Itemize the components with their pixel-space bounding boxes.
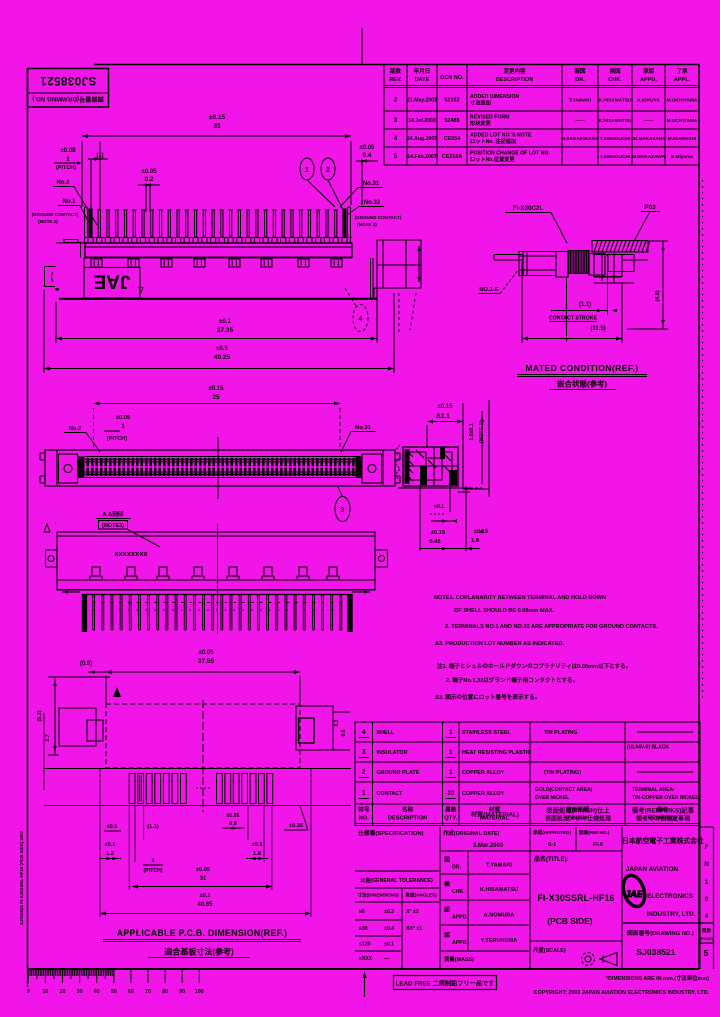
svg-text:INDUSTRY, LTD.: INDUSTRY, LTD. — [647, 911, 696, 918]
svg-text:K.HISAMATSU: K.HISAMATSU — [599, 118, 632, 124]
svg-text:M.UCHIYAMA: M.UCHIYAMA — [667, 97, 698, 103]
svg-text:材質(MATERIAL): 材質(MATERIAL) — [470, 811, 519, 819]
svg-text:図: 図 — [444, 856, 450, 864]
svg-text:OF SHELL SHOULD BE 0.08mm MAX.: OF SHELL SHOULD BE 0.08mm MAX. — [454, 608, 554, 614]
svg-text:10: 10 — [42, 989, 48, 995]
svg-text:A.KIKUYA: A.KIKUYA — [637, 97, 660, 103]
svg-text:±0.05: ±0.05 — [116, 415, 131, 421]
svg-text:4: 4 — [394, 136, 398, 142]
svg-text:80: 80 — [162, 989, 168, 995]
svg-text:±0.05: ±0.05 — [196, 867, 210, 873]
svg-text:(PITCH): (PITCH) — [107, 436, 127, 442]
svg-text:SJ038521 FI-X30SSRL-HF16 (PCB: SJ038521 FI-X30SSRL-HF16 (PCB SIDE) 2007 — [19, 830, 24, 925]
svg-text:符号: 符号 — [358, 806, 370, 814]
svg-text:CHK.: CHK. — [452, 889, 465, 895]
svg-text:40: 40 — [94, 989, 100, 995]
svg-text:NO.1-E: NO.1-E — [479, 287, 498, 293]
svg-text:形状変更: 形状変更 — [470, 119, 492, 127]
svg-text:1.9: 1.9 — [471, 538, 480, 544]
svg-text:≤6: ≤6 — [359, 909, 365, 915]
svg-text:40.25: 40.25 — [214, 354, 231, 361]
svg-text:37.35: 37.35 — [217, 327, 234, 334]
svg-text:APPD.: APPD. — [452, 915, 468, 921]
svg-text:OVER NICKEL: OVER NICKEL — [535, 795, 569, 801]
svg-text:±0.1: ±0.1 — [252, 842, 263, 848]
svg-text:30: 30 — [77, 989, 83, 995]
svg-text:APPLICABLE P.C.B. DIMENSION(RE: APPLICABLE P.C.B. DIMENSION(REF.) — [117, 928, 288, 938]
svg-text:寸法(DIMENSIONS): 寸法(DIMENSIONS) — [357, 892, 399, 899]
svg-text:(TIN PLATING): (TIN PLATING) — [544, 770, 581, 776]
svg-text:1: 1 — [362, 790, 366, 797]
svg-text:25: 25 — [212, 394, 220, 401]
svg-text:(NOTE 2): (NOTE 2) — [357, 222, 377, 227]
svg-text:(NOTE3): (NOTE3) — [102, 523, 124, 529]
svg-text:≤30: ≤30 — [359, 926, 368, 932]
svg-text:±0.15: ±0.15 — [438, 404, 454, 410]
svg-text:(NOTE 2): (NOTE 2) — [38, 219, 58, 224]
svg-text:(PAGE): (PAGE) — [700, 937, 714, 941]
svg-text:FI-X: FI-X — [593, 842, 604, 848]
svg-text:4: 4 — [362, 729, 366, 736]
svg-text:1.8: 1.8 — [253, 851, 262, 857]
svg-text:4: 4 — [705, 914, 709, 920]
svg-text:承認(APPROVED): 承認(APPROVED) — [533, 829, 571, 836]
svg-text:14.Feb.2007: 14.Feb.2007 — [407, 154, 437, 160]
svg-text:ELECTRONICS: ELECTRONICS — [647, 893, 694, 900]
svg-text:STAINLESS STEEL: STAINLESS STEEL — [462, 730, 511, 736]
svg-text:5: 5 — [394, 154, 398, 160]
svg-text:≤120: ≤120 — [359, 942, 371, 948]
svg-text:頁数: 頁数 — [702, 927, 712, 934]
svg-text:A.NOMURA: A.NOMURA — [484, 913, 515, 919]
svg-text:版数: 版数 — [389, 67, 402, 75]
svg-text:100: 100 — [195, 989, 204, 995]
svg-text:HEAT RESISTING PLASTIC: HEAT RESISTING PLASTIC — [462, 750, 531, 756]
svg-text:2: 2 — [326, 167, 330, 174]
svg-text:±0.05: ±0.05 — [199, 650, 215, 656]
svg-text:±0.15: ±0.15 — [209, 114, 226, 121]
svg-text:M.NAKAZAWA: M.NAKAZAWA — [632, 154, 666, 160]
svg-text:±0.1: ±0.1 — [384, 942, 394, 948]
svg-text:DESCRIPTION: DESCRIPTION — [388, 816, 428, 822]
svg-text:K.HISAMATSU: K.HISAMATSU — [480, 887, 518, 893]
svg-text:Δ3. 図示の位置にロット番号を表示する。: Δ3. 図示の位置にロット番号を表示する。 — [435, 693, 540, 701]
svg-text:2: 2 — [362, 769, 366, 776]
svg-text:承認: 承認 — [643, 67, 655, 75]
svg-text:ADDED LOT NO.'S NOTE: ADDED LOT NO.'S NOTE — [470, 133, 532, 139]
svg-text:(5.2): (5.2) — [37, 710, 43, 721]
svg-text:3: 3 — [362, 749, 366, 756]
svg-text:0.6: 0.6 — [341, 729, 347, 736]
svg-text:(0.9): (0.9) — [80, 661, 92, 667]
svg-text:了承: 了承 — [676, 67, 688, 75]
svg-text:質量(MASS): 質量(MASS) — [444, 955, 474, 963]
svg-text:N: N — [704, 862, 708, 868]
svg-text:GROUND PLATE: GROUND PLATE — [377, 770, 420, 776]
svg-text:ADDED DIMENSION: ADDED DIMENSION — [470, 94, 520, 100]
svg-text:SJ038521: SJ038521 — [636, 947, 675, 957]
svg-text:14.Jul.2003: 14.Jul.2003 — [408, 118, 436, 124]
svg-text:変更内容: 変更内容 — [503, 67, 526, 75]
svg-text:QTY.: QTY. — [444, 816, 457, 822]
svg-text:CE216A: CE216A — [442, 154, 463, 160]
svg-text:名称: 名称 — [402, 806, 414, 814]
svg-text:21.May.2003: 21.May.2003 — [407, 97, 437, 103]
svg-text:備考(REMARKS)記事: 備考(REMARKS)記事 — [632, 806, 695, 815]
svg-text:NO.: NO. — [359, 816, 370, 822]
svg-text:POSITION CHANGE OF LOT NO.: POSITION CHANGE OF LOT NO. — [470, 151, 550, 157]
svg-text:1: 1 — [305, 167, 309, 174]
svg-text:0.4: 0.4 — [362, 152, 371, 159]
svg-text:52485: 52485 — [444, 118, 459, 124]
svg-text:(PITCH): (PITCH) — [56, 165, 76, 171]
svg-text:認: 認 — [444, 931, 450, 939]
svg-text:60: 60 — [128, 989, 134, 995]
svg-text:検図: 検図 — [609, 67, 621, 75]
svg-text:3.Mar.2003: 3.Mar.2003 — [473, 843, 504, 849]
svg-text:MATED CONDITION(REF.): MATED CONDITION(REF.) — [525, 363, 638, 373]
svg-text:DESCRIPTION: DESCRIPTION — [496, 77, 534, 83]
svg-text:F: F — [705, 845, 709, 851]
svg-text:Δ1.1: Δ1.1 — [436, 413, 450, 420]
svg-text:T.YAMAKI: T.YAMAKI — [569, 97, 592, 103]
svg-text:FI-X30SSRL-HF16: FI-X30SSRL-HF16 — [537, 893, 614, 903]
svg-text:±0.35: ±0.35 — [289, 823, 303, 829]
svg-text:作成(ORIGINAL DATE): 作成(ORIGINAL DATE) — [443, 829, 500, 837]
svg-text:P03: P03 — [644, 204, 656, 211]
svg-text:Δ: Δ — [138, 285, 144, 294]
svg-text:1: 1 — [66, 156, 70, 163]
svg-text:——: —— — [644, 119, 654, 124]
svg-text:±0.5: ±0.5 — [216, 346, 228, 352]
svg-text:±0.1: ±0.1 — [200, 893, 211, 899]
svg-text:0: 0 — [705, 897, 709, 903]
svg-text:±0.15: ±0.15 — [431, 530, 446, 536]
svg-text:DR.: DR. — [575, 77, 585, 83]
svg-text:表面処理(FINISH)仕上: 表面処理(FINISH)仕上 — [545, 806, 610, 815]
svg-text:JAE: JAE — [625, 889, 644, 899]
svg-text:REV.: REV. — [389, 77, 402, 83]
svg-text:COPPER ALLOY: COPPER ALLOY — [462, 770, 505, 776]
svg-text:検: 検 — [444, 880, 450, 888]
svg-text:図番(REF.NO.): 図番(REF.NO.) — [579, 829, 610, 836]
svg-text:M.NAKAZAKI: M.NAKAZAKI — [633, 136, 664, 142]
svg-text:±0.05: ±0.05 — [360, 145, 376, 151]
svg-text:52152: 52152 — [444, 97, 459, 103]
svg-text:適合基板寸法(参考): 適合基板寸法(参考) — [164, 947, 234, 957]
svg-text:A Δ刻印: A Δ刻印 — [102, 510, 124, 518]
svg-text:2.7: 2.7 — [45, 734, 51, 741]
svg-text:5: 5 — [704, 948, 709, 958]
svg-text:0.8: 0.8 — [229, 821, 237, 827]
svg-text:±0.15: ±0.15 — [474, 529, 489, 535]
svg-text:0.45: 0.45 — [429, 539, 441, 545]
svg-text:M.UCHIYAMA: M.UCHIYAMA — [667, 118, 698, 124]
svg-text:No.2: No.2 — [69, 426, 82, 432]
svg-text:70: 70 — [145, 989, 151, 995]
svg-text:K.HISAMATSU: K.HISAMATSU — [599, 97, 632, 103]
svg-text:REVISED FORM: REVISED FORM — [470, 115, 510, 121]
svg-text:No.1: No.1 — [62, 199, 76, 205]
svg-text:2. 端子No.1,32はグランド端子用コンタクトとする。: 2. 端子No.1,32はグランド端子用コンタクトとする。 — [446, 676, 578, 684]
svg-text:40.65: 40.65 — [197, 902, 213, 908]
svg-text:1: 1 — [151, 858, 155, 864]
svg-text:90: 90 — [179, 989, 185, 995]
svg-text:3: 3 — [341, 507, 345, 514]
svg-text:≤XXX: ≤XXX — [359, 956, 373, 962]
svg-text:(11.5): (11.5) — [590, 326, 605, 332]
svg-text:INSULATOR: INSULATOR — [377, 750, 408, 756]
svg-text:注1. 端子とシェルのホールドダウンのコプラナリティは0.0: 注1. 端子とシェルのホールドダウンのコプラナリティは0.08mm以下とする。 — [437, 662, 631, 670]
svg-text:No.2: No.2 — [56, 180, 70, 186]
svg-text:DATE: DATE — [415, 77, 430, 83]
svg-text:JAPAN AVIATION: JAPAN AVIATION — [626, 866, 679, 873]
svg-text:±0.3: ±0.3 — [384, 909, 394, 915]
svg-text:±0.4: ±0.4 — [384, 926, 394, 932]
svg-text:M.IGARASHI: M.IGARASHI — [668, 136, 697, 142]
svg-text:±0.1: ±0.1 — [105, 842, 116, 848]
svg-text:50: 50 — [111, 989, 117, 995]
svg-text:24.Aug.2005: 24.Aug.2005 — [407, 136, 437, 142]
svg-text:APPD.: APPD. — [640, 77, 657, 83]
svg-text:(GROUND CONTACT): (GROUND CONTACT) — [355, 215, 402, 220]
svg-text:≈0.1: ≈0.1 — [434, 504, 444, 510]
svg-text:APPD.: APPD. — [452, 940, 468, 946]
svg-text:ロットNo.位置変更: ロットNo.位置変更 — [470, 155, 515, 163]
svg-text:図面番号(DRAWING NO.): 図面番号(DRAWING NO.) — [32, 95, 104, 103]
svg-text:T.SEKIGUCHI: T.SEKIGUCHI — [600, 136, 631, 142]
svg-text:品名(TITLE):: 品名(TITLE): — [534, 855, 569, 863]
svg-text:±0.1: ±0.1 — [219, 319, 231, 325]
svg-text:嵌合状態(参考): 嵌合状態(参考) — [557, 379, 607, 389]
svg-text:S.Miyama: S.Miyama — [671, 154, 693, 160]
svg-text:±0.1: ±0.1 — [107, 824, 118, 830]
svg-text:CONTACT STROKE: CONTACT STROKE — [549, 316, 598, 322]
svg-text:2: 2 — [394, 97, 398, 103]
svg-text:±0.05: ±0.05 — [142, 169, 158, 175]
svg-text:X° ±2: X° ±2 — [406, 909, 419, 915]
svg-text:備考その他指定事項: 備考その他指定事項 — [636, 815, 691, 823]
svg-text:±0.15: ±0.15 — [209, 386, 225, 392]
svg-text:H.SAKAKIBARA: H.SAKAKIBARA — [561, 136, 599, 142]
svg-text:No.31: No.31 — [355, 425, 372, 431]
svg-text:TERMINAL AREA:: TERMINAL AREA: — [632, 787, 675, 793]
svg-text:CONTACT: CONTACT — [377, 791, 404, 797]
svg-text:DCN NO.: DCN NO. — [440, 75, 464, 81]
svg-text:APPL.: APPL. — [674, 77, 691, 83]
svg-text:CE054: CE054 — [444, 136, 462, 142]
svg-text:1.2: 1.2 — [106, 851, 114, 857]
svg-text:3: 3 — [394, 118, 398, 124]
svg-text:xxxxxxxx: xxxxxxxx — [114, 549, 148, 558]
svg-text:寸法追加: 寸法追加 — [470, 98, 491, 106]
svg-text:XX° ±1: XX° ±1 — [406, 926, 422, 932]
svg-text:日本航空電子工業株式会社: 日本航空電子工業株式会社 — [622, 836, 704, 845]
svg-text:Δ3. PRODUCTION LOT NUMBER AS I: Δ3. PRODUCTION LOT NUMBER AS INDICATED. — [435, 641, 564, 647]
svg-text:1: 1 — [121, 424, 125, 430]
svg-text:図面番号(DRAWING NO.): 図面番号(DRAWING NO.) — [627, 929, 694, 937]
svg-text:(PITCH): (PITCH) — [143, 868, 162, 874]
svg-text:TIN-COPPER OVER NICKEL: TIN-COPPER OVER NICKEL — [632, 795, 698, 801]
svg-text:31: 31 — [213, 123, 221, 130]
svg-text:2. TERMINALS NO.1 AND NO.32 AR: 2. TERMINALS NO.1 AND NO.32 ARE APPROPRI… — [445, 624, 658, 630]
svg-text:1: 1 — [449, 750, 453, 756]
svg-text:1: 1 — [705, 880, 709, 886]
svg-text:31: 31 — [200, 876, 207, 882]
svg-text:COPYRIGHT: 2003 JAPAN AVIATION: COPYRIGHT: 2003 JAPAN AVIATION ELECTRONI… — [534, 990, 710, 996]
svg-text:TIN PLATING: TIN PLATING — [544, 730, 577, 736]
svg-text:±0.05: ±0.05 — [227, 813, 240, 819]
svg-text:1.0±0.1: 1.0±0.1 — [469, 423, 475, 440]
svg-text:No.32: No.32 — [364, 200, 381, 206]
svg-text:NOTE1. COPLANARITY BETWEEN TER: NOTE1. COPLANARITY BETWEEN TERMINAL AND … — [434, 595, 606, 601]
svg-text:認: 認 — [444, 906, 450, 914]
svg-text:*DIMENSIONS ARE IN mm.(寸法単位mm): *DIMENSIONS ARE IN mm.(寸法単位mm) — [606, 974, 709, 982]
svg-text:公差(GENERAL TOLERANCE): 公差(GENERAL TOLERANCE) — [360, 876, 433, 884]
svg-text:37.55: 37.55 — [198, 658, 215, 665]
svg-text:(UL94V-0) BLACK: (UL94V-0) BLACK — [627, 745, 669, 751]
svg-text:GOLD(CONTACT AREA): GOLD(CONTACT AREA) — [535, 787, 593, 793]
svg-text:0.3: 0.3 — [334, 719, 340, 726]
svg-text:尺度(SCALE): 尺度(SCALE) — [533, 946, 566, 954]
svg-text:4: 4 — [359, 316, 363, 323]
svg-text:員数: 員数 — [444, 806, 457, 814]
svg-text:No.31: No.31 — [363, 181, 380, 187]
svg-text:CHK.: CHK. — [608, 77, 622, 83]
svg-text:0: 0 — [27, 989, 30, 995]
svg-text:SJ038521: SJ038521 — [40, 74, 97, 86]
svg-text:T.YAMAKI: T.YAMAKI — [486, 863, 512, 869]
svg-text:JAE: JAE — [94, 271, 131, 292]
svg-text:(4.8): (4.8) — [655, 290, 661, 301]
svg-text:Y.TERUNUMA: Y.TERUNUMA — [481, 938, 518, 944]
svg-text:FI-X30C2L: FI-X30C2L — [513, 205, 544, 212]
svg-text:SHELL: SHELL — [377, 730, 395, 736]
svg-text:±0.08: ±0.08 — [61, 148, 77, 154]
svg-text:仕様書(SPECIFICATION): 仕様書(SPECIFICATION) — [357, 829, 424, 837]
svg-text:DR.: DR. — [452, 865, 461, 871]
svg-text:製図: 製図 — [574, 67, 586, 75]
svg-text:—: — — [384, 956, 390, 962]
svg-text:20: 20 — [60, 989, 66, 995]
svg-text:COPPER ALLOY: COPPER ALLOY — [462, 791, 505, 797]
svg-text:LEAD FREE 二規制鉛フリー品です: LEAD FREE 二規制鉛フリー品です — [396, 980, 495, 988]
svg-text:(PCB SIDE): (PCB SIDE) — [547, 916, 592, 926]
svg-text:(1.1): (1.1) — [147, 824, 159, 830]
svg-text:1: 1 — [449, 770, 453, 776]
svg-text:30: 30 — [447, 791, 454, 797]
svg-text:T.SEKIGUCHI: T.SEKIGUCHI — [600, 154, 631, 160]
svg-text:0.2: 0.2 — [144, 176, 153, 183]
svg-text:表面処理メッキ仕様処理: 表面処理メッキ仕様処理 — [544, 815, 611, 823]
svg-text:S-1: S-1 — [548, 842, 556, 848]
svg-text:年月日: 年月日 — [414, 67, 431, 75]
svg-text:(GROUND CONTACT): (GROUND CONTACT) — [32, 212, 79, 217]
svg-text:ロットNo. 注記追加: ロットNo. 注記追加 — [470, 137, 516, 145]
svg-text:1: 1 — [449, 730, 453, 736]
svg-text:角度(ANGLES): 角度(ANGLES) — [405, 892, 437, 899]
svg-text:——: —— — [575, 119, 585, 124]
svg-text:(1.1): (1.1) — [579, 302, 591, 308]
